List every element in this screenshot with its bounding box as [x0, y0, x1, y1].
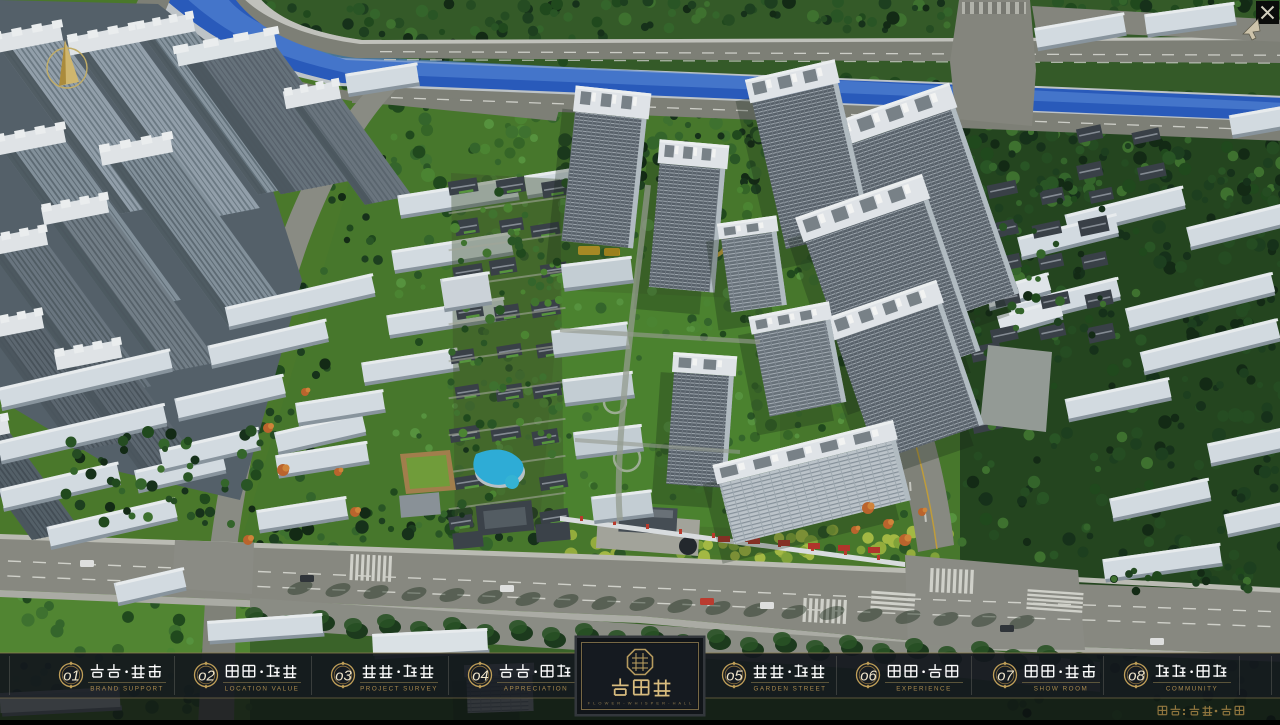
svg-text:o3: o3 [335, 669, 352, 685]
svg-text:BRAND SUPPORT: BRAND SUPPORT [90, 686, 164, 693]
svg-text:PROJECT SURVEY: PROJECT SURVEY [360, 686, 438, 693]
svg-text:o7: o7 [997, 669, 1014, 685]
svg-text:o1: o1 [63, 669, 79, 685]
svg-text:o6: o6 [860, 669, 877, 685]
svg-text:o5: o5 [726, 669, 743, 685]
svg-text:LOCATION VALUE: LOCATION VALUE [225, 686, 300, 693]
svg-text:COMMUNITY: COMMUNITY [1166, 686, 1218, 693]
svg-text:GARDEN STREET: GARDEN STREET [753, 686, 826, 693]
svg-text:o8: o8 [1128, 669, 1145, 685]
svg-text:o4: o4 [472, 669, 488, 685]
svg-text:EXPERIENCE: EXPERIENCE [896, 686, 952, 693]
svg-text:SHOW ROOM: SHOW ROOM [1034, 686, 1088, 693]
svg-text:F L O W E R - W H I S P E R -: F L O W E R - W H I S P E R - H A L L [588, 701, 693, 706]
svg-text:APPRECIATION: APPRECIATION [504, 686, 568, 693]
svg-text:o2: o2 [198, 669, 215, 685]
